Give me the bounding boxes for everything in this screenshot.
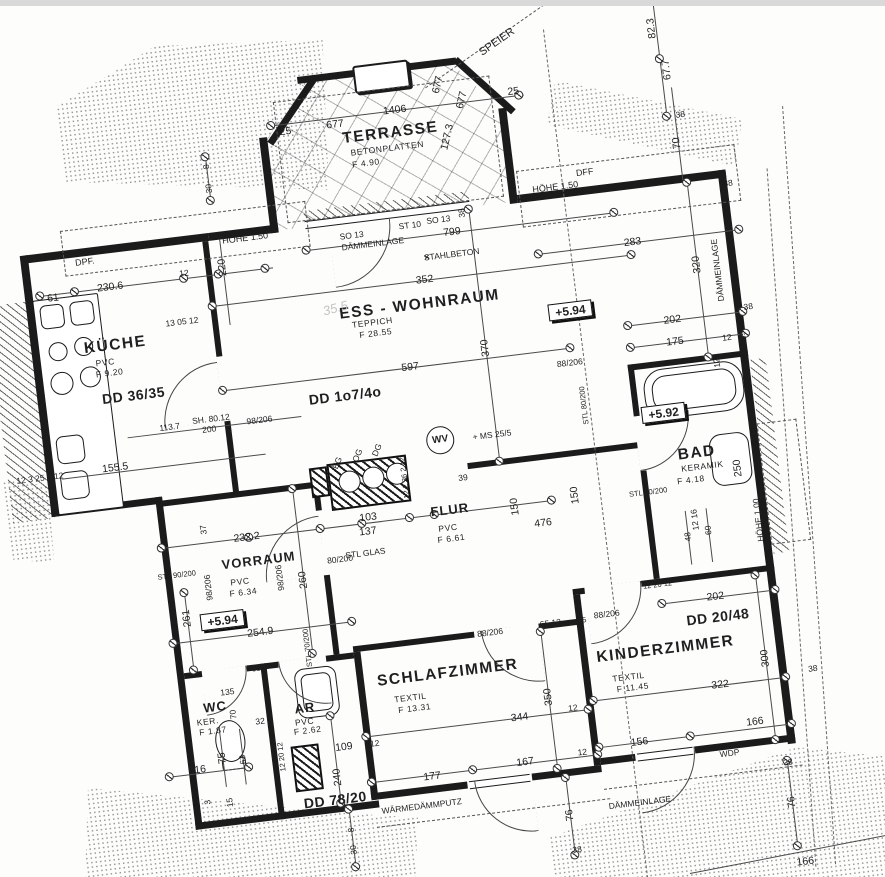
dim-label: 38 [783,757,793,767]
dim-marker [565,343,575,353]
wall [572,588,585,595]
dim-marker [770,585,780,595]
dim-label: WÄRMEDÄMMPUTZ [381,797,462,815]
dim-label: F 6.61 [437,533,466,545]
dim-marker [594,742,604,752]
dim-marker [218,385,228,395]
dim-label: 15 [578,616,587,624]
dim-label: 70 [228,709,238,719]
dim-label: 352 [415,274,434,287]
dim-marker [625,342,635,352]
dim-marker [260,263,270,273]
dim-marker [734,224,744,234]
dim-marker [179,588,189,598]
dim-label: 137 [359,525,378,538]
dim-marker [205,195,215,205]
dim-label: 344 [510,711,529,724]
dim-label: WDP [719,748,740,759]
dim-label: 37 [199,525,209,535]
dimension-line [223,347,572,391]
fixture [55,434,86,465]
dim-marker [750,570,760,580]
room-label: AR [294,700,316,715]
dimension-line [628,311,743,326]
dim-label: 63 [238,754,248,764]
dim-label: 12 [577,747,587,757]
dim-label: 799 [443,226,462,239]
dim-marker [588,696,598,706]
dim-label: 15 [225,797,235,807]
dim-marker [301,245,311,255]
fixture [69,300,96,327]
dim-label: 12 16 [689,509,700,531]
dim-label: 254.9 [247,626,274,640]
dim-label: WV [432,434,449,446]
dim-label: 476 [534,517,553,530]
dim-marker [287,484,297,494]
dim-label: 38 [808,664,818,674]
dim-marker [164,772,174,782]
dim-label: PVC [95,357,115,368]
dim-label: 175 [666,336,685,349]
dimension-line [183,589,194,672]
dim-label: 320 [690,255,703,274]
dim-label: 49 [738,330,748,340]
dim-label: ✕ [423,253,431,262]
dim-label: F 4.18 [677,474,706,486]
dim-label: 88/206 [556,357,583,369]
dim-label: F 11.45 [616,681,649,693]
dim-marker [325,711,335,721]
dim-marker [347,616,357,626]
dim-label: 202 [706,591,725,604]
dim-label: 12 [568,703,578,713]
dim-marker [533,249,543,259]
dim-label: 82.3 [645,18,658,40]
dim-label: 135 [220,687,235,697]
elevation-marker: +5.94 [199,609,245,631]
dim-label: 12 20 12 [643,579,673,590]
dim-label: SO 13 [426,214,451,225]
dim-label: 75 [216,752,228,765]
dim-label: 260 [297,571,310,590]
dim-label: F 9.20 [95,367,124,379]
dim-label: PVC [230,576,250,587]
dim-label: 13 05 12 [165,316,199,328]
dim-label: F 28.55 [359,327,393,339]
dim-label: 60 [703,525,713,535]
dim-label: 166 [746,716,765,729]
dim-label: 38 [457,208,467,218]
dim-label: 155.5 [102,461,129,475]
dim-label: 76 [786,796,798,809]
wall [467,442,637,469]
dim-label: 109 [335,741,354,754]
dim-marker [623,321,633,331]
dim-label: 25 [279,126,292,138]
dim-label: 30 [349,845,359,855]
dim-label: 350 [542,688,555,707]
dim-marker [786,719,796,729]
dim-label: F 13.31 [398,702,432,714]
dim-label: 230.6 [96,281,123,295]
dashed-zone [60,201,311,277]
dim-label: STAHLBETON [423,247,480,262]
scan-edge-strip [0,0,885,6]
dim-label: 166 [796,856,815,869]
dim-label: 261 [181,609,194,628]
dim-label: 156 [630,736,649,749]
dim-label: 300 [759,649,772,668]
dim-label: 98/206 [246,414,273,426]
dim-label: SPEIER [478,26,517,58]
dim-label: 113.7 [159,422,181,433]
dim-label: DD 36/35 [101,384,165,406]
elevation-marker: +5.94 [547,299,593,321]
dim-label: 1406 [382,104,406,117]
room-label: WC [203,699,228,715]
dim-label: 116 [189,764,207,776]
dim-marker [315,524,325,534]
dim-label: 25 [507,86,520,98]
dim-label: 70 [671,137,683,150]
dim-label: 12 [179,268,189,278]
dim-marker [560,772,570,782]
dim-label: 322 [711,679,730,692]
dim-label: 12 [722,333,732,343]
dim-label: F 6.34 [229,586,258,598]
floor-plan-page: KÜCHEESS - WOHNRAUMTERRASSEBADFLURVORRAU… [0,0,885,877]
wall [353,652,378,801]
dim-marker [657,598,667,608]
dim-label: 220 [216,258,229,277]
dim-label: 12 20 12 [276,742,287,772]
dim-label: 38 [743,302,753,312]
wall [694,734,795,753]
dim-label: 677 [326,118,345,131]
dim-label: 61 [47,292,60,304]
dim-marker [781,672,791,682]
floor-plan-drawing: KÜCHEESS - WOHNRAUMTERRASSEBADFLURVORRAU… [0,0,885,877]
dim-label: + MS 25/5 [472,428,512,441]
room-label: FLUR [430,501,470,519]
dim-label: 68.9 [251,663,268,673]
dim-label: 103 [359,511,378,524]
dim-label: 240 [331,768,344,787]
wall [324,575,340,655]
dim-label: 38 [675,110,685,120]
fixture [59,469,90,500]
dim-label: 370 [479,339,492,358]
dim-marker [546,495,556,505]
door-arc [474,774,539,839]
dim-label: 12 [712,358,722,368]
wall [353,632,475,653]
dim-label: 48 [683,532,693,542]
dim-label: DÄMMEINLAGE [710,238,726,301]
dim-label: 98/206 [203,574,215,601]
dim-label: 80/200 [327,554,354,566]
room-label: ESS - WOHNRAUM [339,287,501,322]
dim-label: 38 [572,845,582,855]
dim-label: 232.2 [233,531,260,545]
wall [326,652,355,661]
hatched-block [309,466,331,498]
dim-label: 12 [370,739,380,749]
dim-label: 202 [663,314,682,327]
hatched-block [290,743,323,792]
dim-label: DG [371,442,384,457]
dim-label: 597 [401,361,420,374]
room-label: SCHLAFZIMMER [376,657,519,690]
dim-label: 39 [458,473,468,483]
dim-label: DD 20/48 [686,606,750,628]
dim-label: 250 [732,459,745,478]
dim-label: 76 [564,809,576,822]
dim-label: 167 [516,756,535,769]
dim-marker [404,513,414,523]
wall [600,754,636,765]
dim-label: 177 [423,770,442,783]
dim-label: STL 90/200 [157,569,196,581]
room-label: KINDERZIMMER [596,633,735,665]
dim-marker [626,250,636,260]
dim-label: DD 1o7/4o [308,384,382,407]
fixture [39,303,66,330]
dim-label: 150 [569,486,582,505]
dim-label: 200 [202,424,217,434]
dimension-line [167,767,250,778]
dim-label: 38 [723,178,733,188]
dim-label: 32 [255,716,265,726]
dim-label: 67.7 [660,59,673,81]
dim-marker [685,731,695,741]
wall [627,364,639,416]
dim-label: F 2.62 [293,725,322,737]
dim-marker [468,765,478,775]
dim-label: ST 10 [398,220,421,231]
dim-label: STL 70/200 [629,486,668,498]
dim-label: 283 [623,236,642,249]
dim-label: 150 [509,497,522,516]
dim-label: PVC [438,523,458,534]
dim-label: 30 [204,183,214,193]
